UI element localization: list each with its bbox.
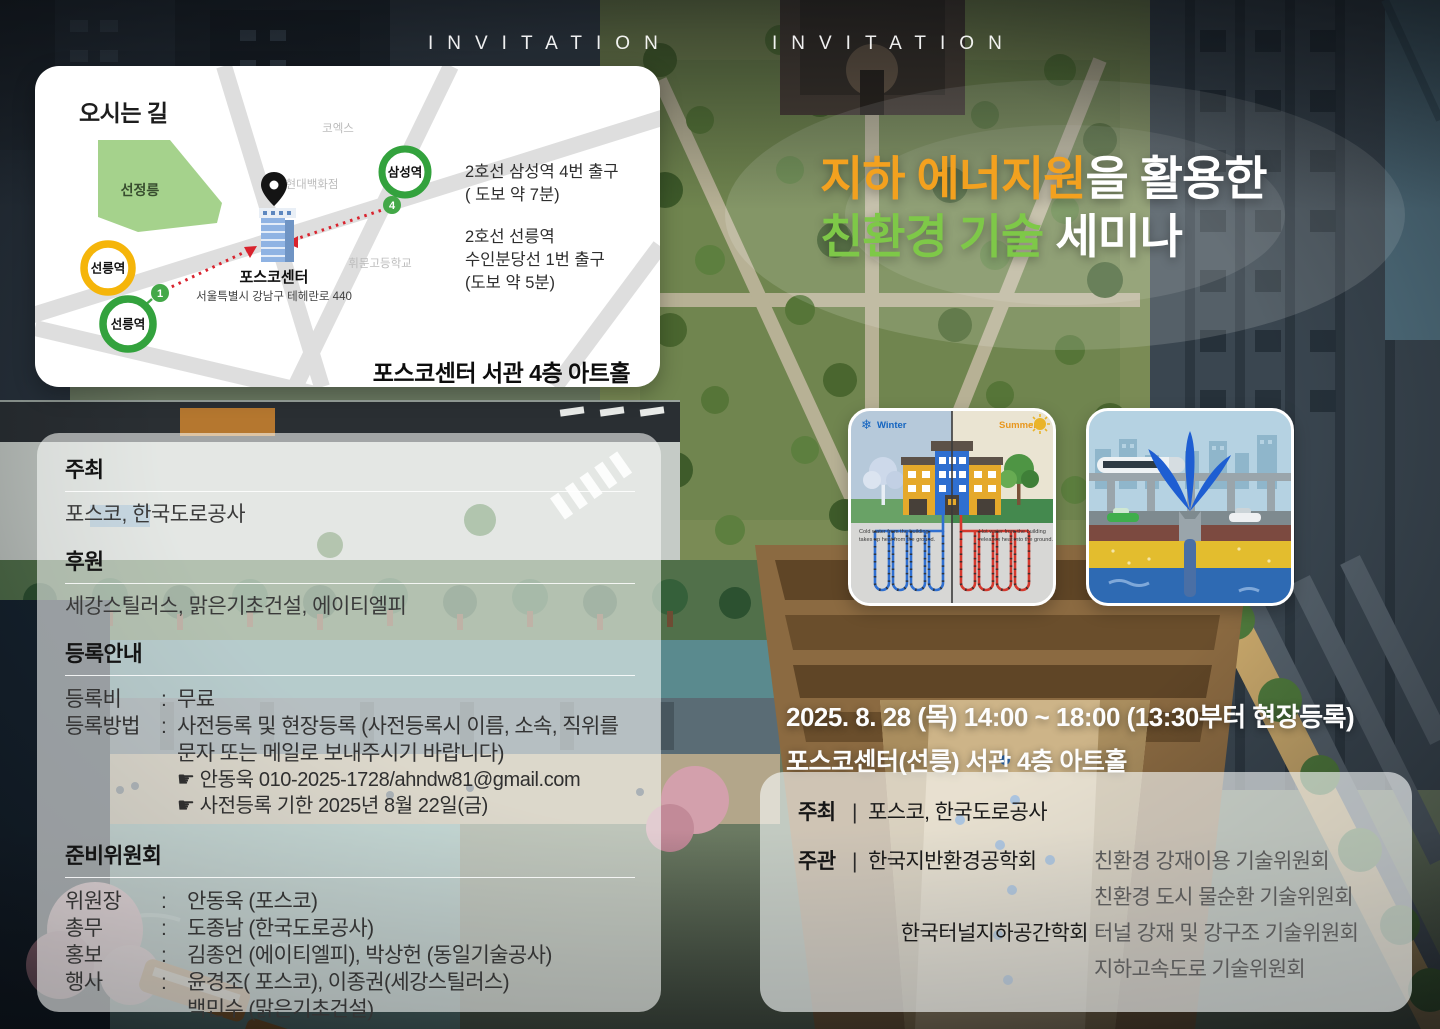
venue-label: 포스코센터 서관 4층 아트홀 <box>373 354 630 387</box>
organizers-card: 주최 | 포스코, 한국도로공사 주관 | 한국지반환경공학회 친환경 강재이용… <box>760 772 1412 1012</box>
title-highlight-green: 친환경 기술 <box>820 210 1043 263</box>
invitation-text-right: INVITATION <box>772 33 1016 55</box>
seolleung-rail-marker: 선릉역 <box>103 299 153 349</box>
host-heading: 주최 <box>65 453 635 492</box>
fee-value: 무료 <box>177 686 635 713</box>
svg-text:선릉역: 선릉역 <box>111 317 146 332</box>
svg-text:1: 1 <box>157 288 163 300</box>
org-host-row: 주최 | 포스코, 한국도로공사 <box>798 798 1412 827</box>
summer-caption-line1: Hot water from the building <box>979 529 1046 535</box>
committee-row: 행사 : 윤경조( 포스코), 이종권(세강스틸러스) <box>65 969 635 996</box>
title-highlight-orange: 지하 에너지원 <box>820 152 1086 205</box>
park-label: 선정릉 <box>121 182 160 198</box>
committee-heading: 준비위원회 <box>65 839 635 878</box>
organizer-2-name: 한국터널지하공간학회 <box>868 919 1094 948</box>
event-schedule: 2025. 8. 28 (목) 14:00 ~ 18:00 (13:30부터 현… <box>786 697 1354 778</box>
winter-label: Winter <box>877 420 907 431</box>
fee-label: 등록비 <box>65 686 161 713</box>
host-body: 포스코, 한국도로공사 <box>65 502 635 528</box>
registration-method-row: 등록방법 : 사전등록 및 현장등록 (사전등록시 이름, 소속, 직위를 문자… <box>65 713 635 767</box>
organizer-1-name: 한국지반환경공학회 <box>868 847 1094 876</box>
winter-caption-line1: Cold water from the building <box>859 529 929 535</box>
summer-label: Summer <box>999 420 1037 431</box>
organizer-1-committee-2: 친환경 도시 물순환 기술위원회 <box>1094 883 1353 912</box>
registration-fee-row: 등록비 : 무료 <box>65 686 635 713</box>
sponsor-heading: 후원 <box>65 545 635 584</box>
sun-icon <box>1034 418 1046 430</box>
registration-heading: 등록안내 <box>65 637 635 676</box>
seolleung-subway-marker: 선릉역 <box>84 244 132 292</box>
exit4-badge: 4 <box>383 196 401 214</box>
committee-row: 백민수 (맑은기초건설) <box>65 996 635 1023</box>
map-card-title: 오시는 길 <box>79 94 168 128</box>
committee-row: 홍보 : 김종언 (에이티엘피), 박상헌 (동일기술공사) <box>65 942 635 969</box>
posco-building-icon <box>259 208 296 262</box>
summer-caption-line2: releases heat into the ground. <box>979 537 1053 543</box>
directions-map-card: 선정릉 코엑스 현대백화점 휘문고등학교 <box>35 66 660 387</box>
transit-directions: 2호선 삼성역 4번 출구 ( 도보 약 7분) 2호선 선릉역 수인분당선 1… <box>465 161 619 314</box>
poi-whimoon-hs: 휘문고등학교 <box>348 257 411 270</box>
svg-text:삼성역: 삼성역 <box>388 165 423 180</box>
committee-row: 위원장 : 안동욱 (포스코) <box>65 888 635 915</box>
registration-deadline-note: ☛ 사전등록 기한 2025년 8월 22일(금) <box>177 793 635 819</box>
sponsor-body: 세강스틸러스, 맑은기초건설, 에이티엘피 <box>65 594 635 620</box>
direction-line: ( 도보 약 7분) <box>465 184 619 207</box>
snowflake-icon: ❄ <box>861 417 872 432</box>
samseong-station-marker: 삼성역 <box>382 149 428 195</box>
direction-line: 수인분당선 1번 출구 <box>465 249 619 272</box>
building-address-label: 서울특별시 강남구 테헤란로 440 <box>196 290 352 303</box>
organizer-1-committee-1: 친환경 강재이용 기술위원회 <box>1094 847 1329 876</box>
title-line-2: 친환경 기술 세미나 <box>820 208 1267 266</box>
building-name-label: 포스코센터 <box>239 269 308 286</box>
event-datetime: 2025. 8. 28 (목) 14:00 ~ 18:00 (13:30부터 현… <box>786 697 1354 734</box>
direction-line: 2호선 선릉역 <box>465 226 619 249</box>
monorail-train-icon <box>1097 457 1185 473</box>
organizer-2-committee-2: 지하고속도로 기술위원회 <box>1094 955 1305 984</box>
title-line-1: 지하 에너지원을 활용한 <box>820 150 1267 208</box>
direction-line: 2호선 삼성역 4번 출구 <box>465 161 619 184</box>
method-label: 등록방법 <box>65 713 161 767</box>
registration-contact-note: ☛ 안동욱 010-2025-1728/ahndw81@gmail.com <box>177 767 635 793</box>
poi-coex: 코엑스 <box>322 122 354 135</box>
method-line: 문자 또는 메일로 보내주시기 바랍니다) <box>177 740 635 767</box>
direction-line: (도보 약 5분) <box>465 272 619 295</box>
committee-row: 총무 : 도종남 (한국도로공사) <box>65 915 635 942</box>
method-line: 사전등록 및 현장등록 (사전등록시 이름, 소속, 직위를 <box>177 713 635 740</box>
org-host-value: 포스코, 한국도로공사 <box>868 798 1047 827</box>
geothermal-seasons-illustration: ❄ Winter Summer Cold water from the buil… <box>848 408 1056 606</box>
seminar-title: 지하 에너지원을 활용한 친환경 기술 세미나 <box>820 150 1267 266</box>
poi-hyundai-dept: 현대백화점 <box>286 178 339 191</box>
winter-caption-line2: takes up heat from the ground. <box>859 537 936 543</box>
org-organizer-row: 주관 | 한국지반환경공학회 친환경 강재이용 기술위원회 <box>798 847 1412 876</box>
svg-text:선릉역: 선릉역 <box>91 261 126 276</box>
invitation-text-left: INVITATION <box>428 33 672 55</box>
groundwater-city-illustration <box>1086 408 1294 606</box>
event-info-card: 주최 포스코, 한국도로공사 후원 세강스틸러스, 맑은기초건설, 에이티엘피 … <box>37 433 661 1012</box>
svg-text:4: 4 <box>389 200 396 212</box>
organizer-2-committee-1: 터널 강재 및 강구조 기술위원회 <box>1094 919 1358 948</box>
exit1-badge: 1 <box>151 284 169 302</box>
